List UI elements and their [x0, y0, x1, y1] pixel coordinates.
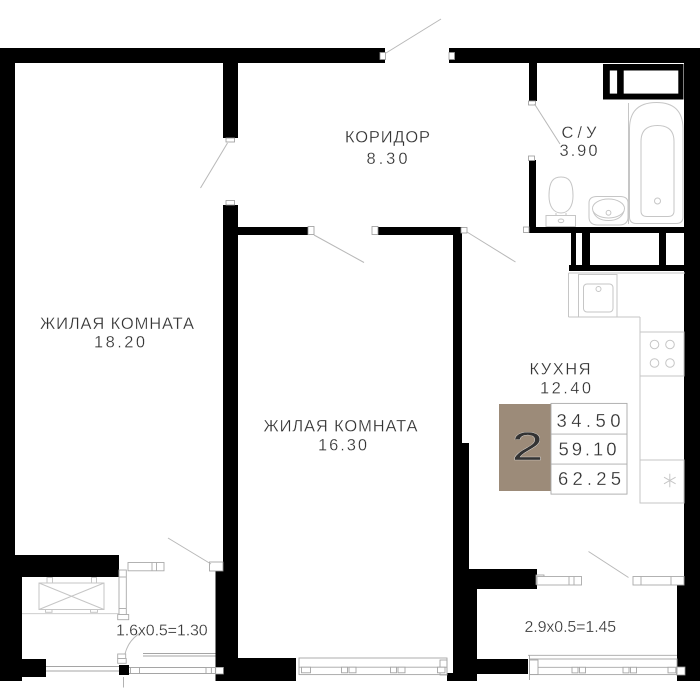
svg-text:12.40: 12.40 — [540, 379, 592, 397]
svg-text:ЖИЛАЯ КОМНАТА: ЖИЛАЯ КОМНАТА — [40, 315, 195, 333]
svg-text:18.20: 18.20 — [94, 334, 146, 352]
svg-text:3.90: 3.90 — [560, 142, 599, 160]
svg-text:С/У: С/У — [562, 124, 598, 142]
svg-text:ЖИЛАЯ КОМНАТА: ЖИЛАЯ КОМНАТА — [264, 417, 419, 435]
svg-text:1.6x0.5=1.30: 1.6x0.5=1.30 — [116, 623, 208, 640]
svg-text:34.50: 34.50 — [557, 410, 622, 431]
svg-text:2: 2 — [512, 425, 544, 469]
svg-text:16.30: 16.30 — [318, 436, 368, 454]
svg-text:62.25: 62.25 — [558, 468, 622, 489]
svg-text:2.9x0.5=1.45: 2.9x0.5=1.45 — [525, 619, 617, 636]
svg-text:КУХНЯ: КУХНЯ — [530, 361, 592, 379]
svg-text:8.30: 8.30 — [367, 150, 409, 168]
svg-text:КОРИДОР: КОРИДОР — [345, 129, 431, 147]
svg-text:59.10: 59.10 — [559, 439, 618, 460]
